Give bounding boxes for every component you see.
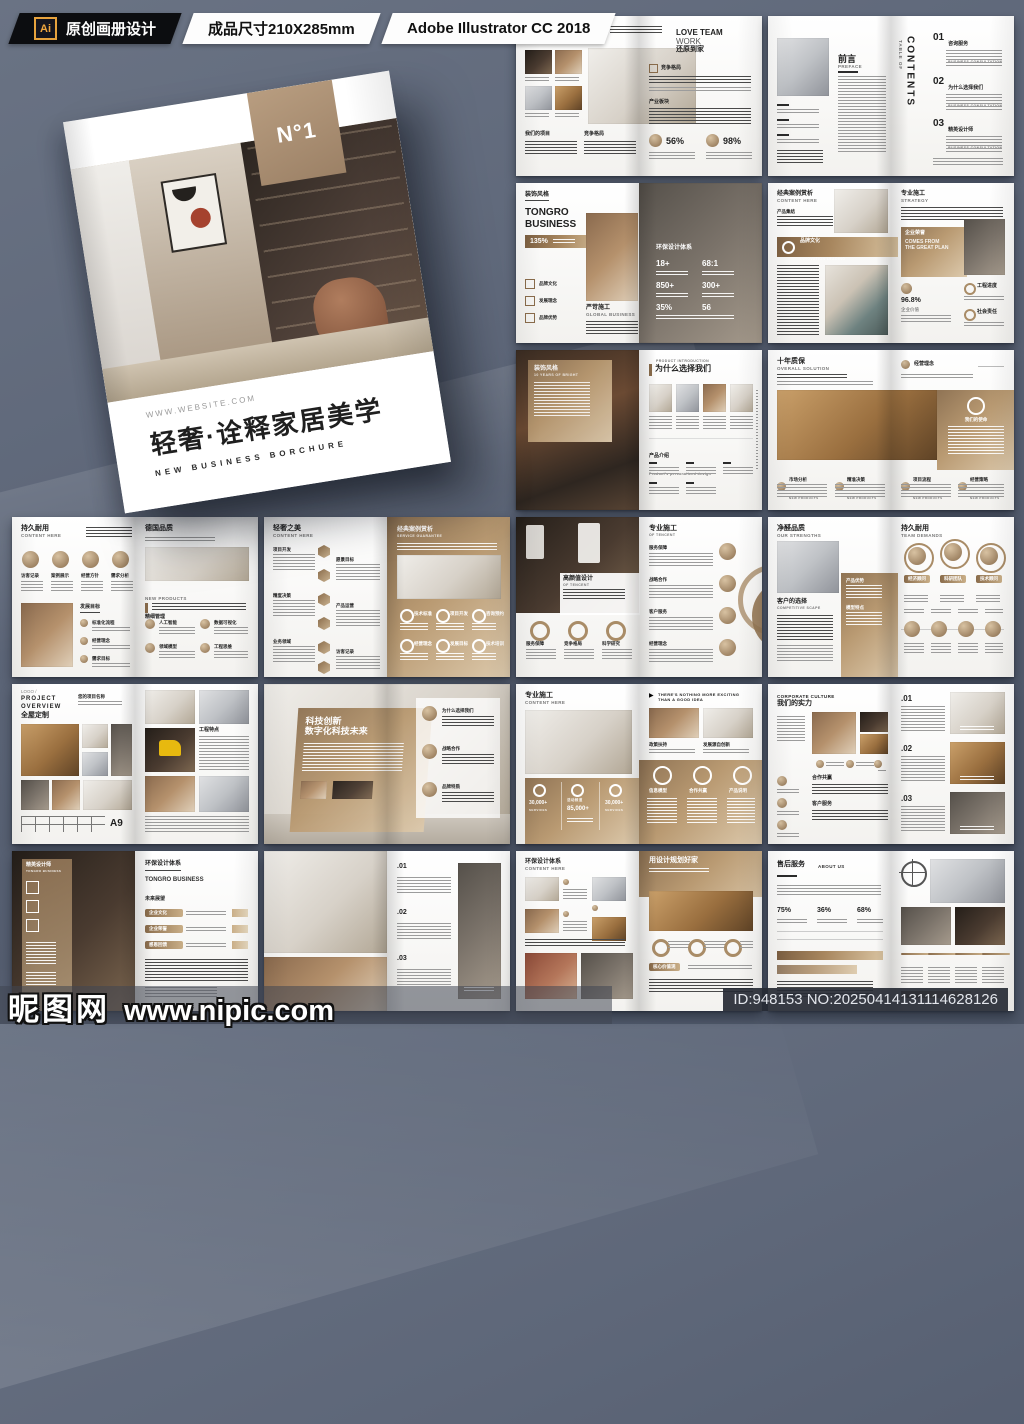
spread-construction-idea: 专业施工CONTENT HERE 30,000+SERVICES 活动频道85,… — [516, 684, 762, 844]
abs: 政策扶持 — [649, 742, 667, 747]
abs: 企业价值 — [901, 307, 919, 313]
abs — [777, 124, 819, 130]
abs — [686, 467, 716, 475]
abs: 经营理念 — [901, 360, 934, 369]
abs — [92, 645, 130, 649]
hc: 产品优势 — [846, 578, 893, 583]
abs: SERVICES — [605, 808, 623, 812]
hc: 经典案例赏析 — [777, 191, 817, 198]
abs: 竞争格局 — [584, 132, 636, 155]
abs — [318, 617, 330, 630]
abs — [777, 104, 789, 106]
abs: 经营方针 — [81, 573, 99, 578]
tl — [553, 239, 575, 245]
abs — [555, 77, 579, 81]
abs — [472, 623, 496, 631]
div — [300, 781, 419, 799]
abs — [563, 921, 587, 931]
abs — [928, 953, 956, 955]
abs: .03 — [397, 955, 407, 963]
abs — [686, 482, 694, 484]
award-icon — [26, 881, 39, 894]
abs — [442, 792, 494, 804]
abs: 轻奢之美CONTENT HERE — [273, 525, 313, 538]
abs — [946, 136, 1002, 152]
abs — [901, 967, 923, 983]
abs — [901, 907, 951, 945]
abs — [472, 639, 486, 653]
tl — [525, 141, 577, 155]
abs — [442, 754, 494, 766]
abs — [592, 905, 598, 911]
abs — [676, 384, 699, 412]
f8: WORK — [676, 37, 723, 46]
abs: A9 — [110, 818, 123, 830]
abs — [232, 925, 248, 933]
abs — [777, 798, 787, 808]
abs — [703, 749, 749, 755]
abs: 工程进度 — [977, 284, 997, 290]
abs — [83, 780, 132, 810]
abs — [901, 806, 945, 832]
bullet-icon — [649, 64, 658, 73]
target-icon — [967, 397, 985, 415]
adobe-illustrator-icon: Ai — [34, 17, 57, 40]
abs — [777, 716, 805, 742]
person-avatar — [944, 543, 962, 561]
loft-photo — [525, 710, 632, 774]
duty-icon — [964, 309, 976, 321]
abs — [400, 639, 414, 653]
wall-art — [163, 175, 225, 250]
abs — [719, 607, 736, 624]
abs — [649, 152, 695, 160]
abs — [649, 617, 713, 631]
he: OF TENCENT — [649, 533, 677, 537]
advantage-panel: 产品优势 模型特点 — [841, 573, 898, 677]
hc: 经营策略 — [970, 477, 988, 482]
abs — [78, 701, 122, 705]
abs: 案例展示 — [51, 573, 69, 578]
abs: 专业施工STRATEGY — [901, 191, 928, 203]
abs: 标准化流程 — [92, 620, 115, 625]
abs — [950, 692, 1005, 734]
he: NEW PRODUCTS — [145, 596, 187, 601]
abs — [525, 877, 559, 901]
abs — [703, 384, 726, 412]
abs: 产品集结 — [777, 209, 795, 214]
abs: .01 — [397, 863, 407, 871]
abs — [336, 564, 380, 580]
abs — [733, 766, 752, 785]
abs — [422, 782, 437, 797]
ph — [300, 781, 327, 799]
abs — [336, 610, 380, 626]
corridor-photo — [586, 213, 638, 301]
abs: 环保设计体系 — [656, 245, 692, 252]
image-id-bar: ID:948153 NO:20250414131114628126 — [723, 988, 1008, 1011]
abs — [649, 438, 753, 439]
abs: 我们的项目 — [525, 132, 577, 155]
person-avatar — [908, 547, 926, 565]
hc: 01 — [933, 32, 944, 68]
abs — [555, 86, 582, 110]
hc: 持久耐用 — [901, 525, 943, 533]
abs — [835, 484, 885, 498]
abs — [525, 77, 549, 81]
abs — [436, 639, 450, 653]
abs — [599, 782, 600, 830]
span: BUSINESS — [525, 219, 576, 230]
play-icon: ▶ — [649, 692, 654, 699]
site-watermark: 昵图网 www.nipic.com — [8, 984, 334, 1029]
abs: 经典案例赏析SERVICE GUARANTEE — [397, 527, 442, 538]
abs — [86, 527, 132, 537]
abs — [568, 621, 588, 641]
person-avatar — [931, 621, 947, 637]
abs — [777, 381, 873, 385]
abs — [703, 416, 726, 430]
he: OUR STRENGTHS — [777, 533, 821, 538]
dining-photo — [777, 38, 829, 96]
size-label: 成品尺寸210X285mm — [208, 18, 355, 39]
abs: 我们的实力 — [777, 700, 812, 708]
abs: CONTENTS — [904, 36, 916, 107]
spread-durable-german: 持久耐用CONTENT HERE 访客记录案例展示经营方针需求分析 发展目标 标… — [12, 517, 258, 677]
abs: 产品说明 — [729, 788, 747, 793]
abs: 98% — [723, 136, 741, 146]
abs — [730, 416, 753, 430]
abs — [649, 487, 679, 495]
tl — [302, 743, 404, 773]
abs — [145, 959, 248, 981]
abs — [199, 736, 249, 772]
abs: 产业板块 — [649, 100, 669, 106]
abs: 业务领域 — [273, 639, 291, 644]
he: CONTENT HERE — [273, 533, 313, 538]
wardrobe-photo — [777, 390, 937, 460]
abs — [985, 643, 1003, 653]
abs — [606, 621, 626, 641]
stairs-photo — [145, 547, 249, 581]
abs — [901, 484, 951, 498]
abs: 发展目标 — [80, 605, 100, 613]
abs: PRODUCT INTRODUCTION — [656, 359, 709, 363]
abs — [946, 94, 1002, 110]
abs — [964, 296, 1004, 302]
abs — [649, 749, 695, 755]
person-avatar — [904, 621, 920, 637]
he: 10 YEARS OF BRIGHT — [534, 373, 606, 377]
abs — [719, 575, 736, 592]
brand-icon — [525, 296, 535, 306]
abs: 项目开发 — [450, 611, 468, 616]
philosophy-icon — [901, 360, 910, 369]
abs — [904, 595, 928, 603]
style-card: 装饰风格10 YEARS OF BRIGHT — [528, 360, 612, 442]
spread-preface-contents: 前言PREFACE CONTENTS TABLE OF 01咨询服务BUSINE… — [768, 16, 1014, 176]
abs — [777, 265, 819, 335]
abs: 产品运营 — [336, 603, 354, 608]
compass-icon — [901, 861, 927, 887]
abs — [186, 943, 226, 947]
abs — [649, 708, 699, 738]
abs — [901, 706, 945, 732]
abs — [52, 780, 80, 810]
points-panel: 为什么选择我们 战略合作 品牌特质 — [416, 698, 500, 818]
abs: 发展理念 — [525, 296, 557, 306]
shelf-photo — [955, 907, 1005, 945]
abs — [530, 621, 550, 641]
abs — [958, 484, 1004, 498]
abs — [777, 139, 819, 145]
abs: PROJECT — [21, 696, 56, 703]
hc: 模型特点 — [846, 605, 893, 610]
abs: 战略合作 — [649, 577, 667, 582]
abs — [318, 641, 330, 654]
abs: 战略合作 — [442, 746, 460, 751]
hc: LOVE TEAM — [676, 28, 723, 37]
abs — [649, 462, 657, 464]
hc: 为什么选择我们 — [655, 364, 711, 376]
abs: 85,000+ — [567, 806, 589, 812]
abs: 社会责任 — [977, 310, 997, 316]
abs: 300+ — [702, 281, 720, 290]
abs: ABOUT US — [818, 864, 845, 869]
abs — [826, 762, 844, 766]
abs — [563, 889, 587, 899]
abs: TONGROBUSINESS — [525, 207, 576, 230]
abs: 服务保障 — [526, 641, 544, 646]
abs: 服务保障 — [649, 545, 667, 550]
abs: 合作共赢 — [812, 776, 832, 782]
watermark-url: www.nipic.com — [124, 995, 334, 1028]
abs — [777, 811, 799, 815]
abs — [472, 653, 496, 661]
abs — [525, 86, 552, 110]
hc: 前言 — [838, 54, 862, 64]
abs: .02 — [901, 744, 912, 753]
abs — [960, 826, 994, 830]
spread-high-design: 高颜值设计OF TENCENT 服务保障 竞争格局 科学研究 专业施工OF TE… — [516, 517, 762, 677]
abs — [273, 646, 315, 662]
abs — [688, 965, 752, 971]
abs — [318, 661, 330, 674]
abs: 科研团队 — [940, 575, 966, 583]
abs — [442, 716, 494, 728]
abs — [686, 487, 716, 495]
abs: TABLE OF — [898, 40, 903, 70]
abs — [933, 158, 1003, 166]
abs — [656, 293, 688, 297]
abs — [400, 623, 428, 631]
abs — [649, 416, 672, 430]
abs — [816, 760, 824, 768]
abs — [51, 581, 73, 593]
abs: 竞争格局 — [564, 641, 582, 646]
stat-icon — [649, 134, 662, 147]
abs — [958, 643, 978, 653]
tl — [948, 426, 1004, 454]
abs — [80, 619, 88, 627]
hc: 竞争格局 — [661, 66, 681, 72]
stairs-photo — [777, 541, 839, 593]
bedroom-photo — [825, 265, 888, 335]
tl — [846, 585, 882, 599]
abs — [422, 744, 437, 759]
he: CONTENT HERE — [525, 866, 565, 871]
abs — [817, 919, 847, 923]
abs: SERVICES — [529, 808, 547, 812]
abs — [172, 186, 198, 203]
abs — [812, 810, 888, 820]
gold-bar — [777, 951, 883, 960]
abs — [901, 374, 973, 379]
abs: 30,000+ — [529, 800, 547, 806]
hc: 咨询服务 — [948, 41, 968, 47]
abs — [777, 885, 881, 897]
abs — [656, 315, 734, 319]
abs — [777, 776, 787, 786]
abs: 18+ — [656, 259, 670, 268]
hc: 严苛施工 — [586, 305, 635, 312]
abs — [533, 784, 546, 797]
abs — [592, 877, 626, 901]
abs — [609, 784, 622, 797]
abs — [777, 134, 789, 136]
abs: 您的项目名称 — [78, 694, 105, 699]
abs: 专业施工OF TENCENT — [649, 525, 677, 537]
abs: .01 — [901, 694, 912, 703]
abs — [200, 619, 210, 629]
abs: 未来展望 — [145, 897, 165, 903]
abs: 持久耐用CONTENT HERE — [21, 525, 61, 538]
abs — [777, 119, 789, 121]
he: COMPETITIVE SCAPE — [777, 606, 821, 610]
abs: 品牌文化 — [525, 279, 557, 289]
abs: TONGRO BUSINESS — [145, 877, 204, 884]
design-tag-segment: Ai原创画册设计 — [8, 13, 181, 44]
span: Ai原创画册设计 — [34, 17, 156, 40]
abs: LOVE TEAMWORK还原到家 — [676, 28, 723, 54]
abs — [526, 649, 556, 659]
ph — [332, 781, 373, 799]
abs — [400, 609, 414, 623]
span: 品牌文化INNOVATION LEADING — [800, 229, 845, 265]
abs — [649, 649, 713, 663]
abs: 技术标准 — [414, 611, 432, 616]
abs: 36% — [817, 907, 831, 915]
abs — [777, 820, 787, 830]
abs — [649, 467, 679, 475]
bedroom-photo — [21, 724, 79, 776]
abs — [950, 792, 1005, 834]
abs: 德国品质 — [145, 525, 173, 533]
hc: 品牌文化 — [800, 238, 820, 244]
cover-number-badge: N°1 — [247, 80, 347, 186]
abs — [555, 50, 582, 74]
abs — [186, 927, 226, 931]
hc: 经典案例赏析 — [397, 527, 442, 534]
hc: 数字化科技未来 — [304, 726, 423, 736]
spread-ten-year: 十年质保OVERALL SOLUTION 经营理念 我们的使命 市场分析NEW … — [768, 350, 1014, 510]
person-avatar — [980, 547, 998, 565]
hc: 还原到家 — [676, 46, 723, 54]
sofa-photo — [930, 859, 1005, 903]
he: STRATEGY — [901, 198, 928, 203]
hc: 十年质保 — [777, 358, 829, 366]
abs — [525, 909, 559, 933]
abs — [976, 595, 1000, 603]
kitchen-photo — [649, 891, 753, 931]
interior-photo — [458, 863, 501, 999]
abs — [777, 109, 819, 115]
abs — [145, 816, 249, 832]
abs — [273, 554, 315, 570]
abs: 30,000+ — [605, 800, 623, 806]
he: CONTENT HERE — [21, 533, 61, 538]
honor-box: 企业荣誉COMES FROMTHE GREAT PLAN — [901, 227, 967, 277]
hc: 高颜值设计 — [563, 576, 637, 583]
abs — [561, 782, 562, 830]
person-avatar — [958, 621, 974, 637]
abs: OVERVIEW — [21, 704, 61, 711]
abs — [777, 216, 833, 228]
abs — [946, 50, 1002, 68]
image-id-text: ID:948153 NO:20250414131114628126 — [733, 991, 998, 1008]
hc: 产品介绍 — [649, 453, 669, 459]
abs: 装饰风格 — [525, 192, 549, 201]
abs — [336, 656, 380, 670]
stat-icon — [706, 134, 719, 147]
software-segment: Adobe Illustrator CC 2018 — [381, 13, 616, 44]
abs — [400, 653, 428, 661]
abs: 访客记录 — [21, 573, 39, 578]
abs — [82, 551, 99, 568]
abs — [563, 879, 569, 885]
abs: 经济顾问 — [904, 575, 930, 583]
abs — [723, 467, 753, 475]
abs — [676, 416, 699, 430]
abs — [21, 780, 49, 810]
hc: THE GREAT PLAN — [905, 246, 963, 252]
abs: 售后服务 — [777, 861, 805, 869]
abs — [214, 651, 248, 659]
abs: 品牌优势 — [525, 313, 557, 323]
abs: LOGO / — [21, 689, 37, 694]
ceiling-room-photo — [264, 851, 387, 953]
size-segment: 成品尺寸210X285mm — [182, 13, 380, 44]
watermark-brand: 昵图网 — [8, 984, 110, 1029]
abs — [931, 609, 951, 615]
stats-band: 30,000+SERVICES 活动频道85,000+ 30,000+SERVI… — [525, 778, 640, 844]
overlay-card: 高颜值设计OF TENCENT — [560, 573, 640, 615]
abs — [940, 595, 964, 603]
he: PREFACE — [838, 64, 862, 69]
abs — [777, 939, 883, 940]
abs — [777, 615, 833, 641]
abs — [693, 766, 712, 785]
abs — [857, 919, 883, 923]
he: INNOVATION LEADING — [800, 257, 845, 261]
abs — [955, 967, 977, 983]
abs — [649, 482, 657, 484]
he: CONTENT HERE — [525, 700, 565, 705]
tl — [846, 612, 882, 626]
hc: 专业施工 — [649, 525, 677, 533]
abs — [958, 609, 978, 615]
abs — [472, 609, 486, 623]
